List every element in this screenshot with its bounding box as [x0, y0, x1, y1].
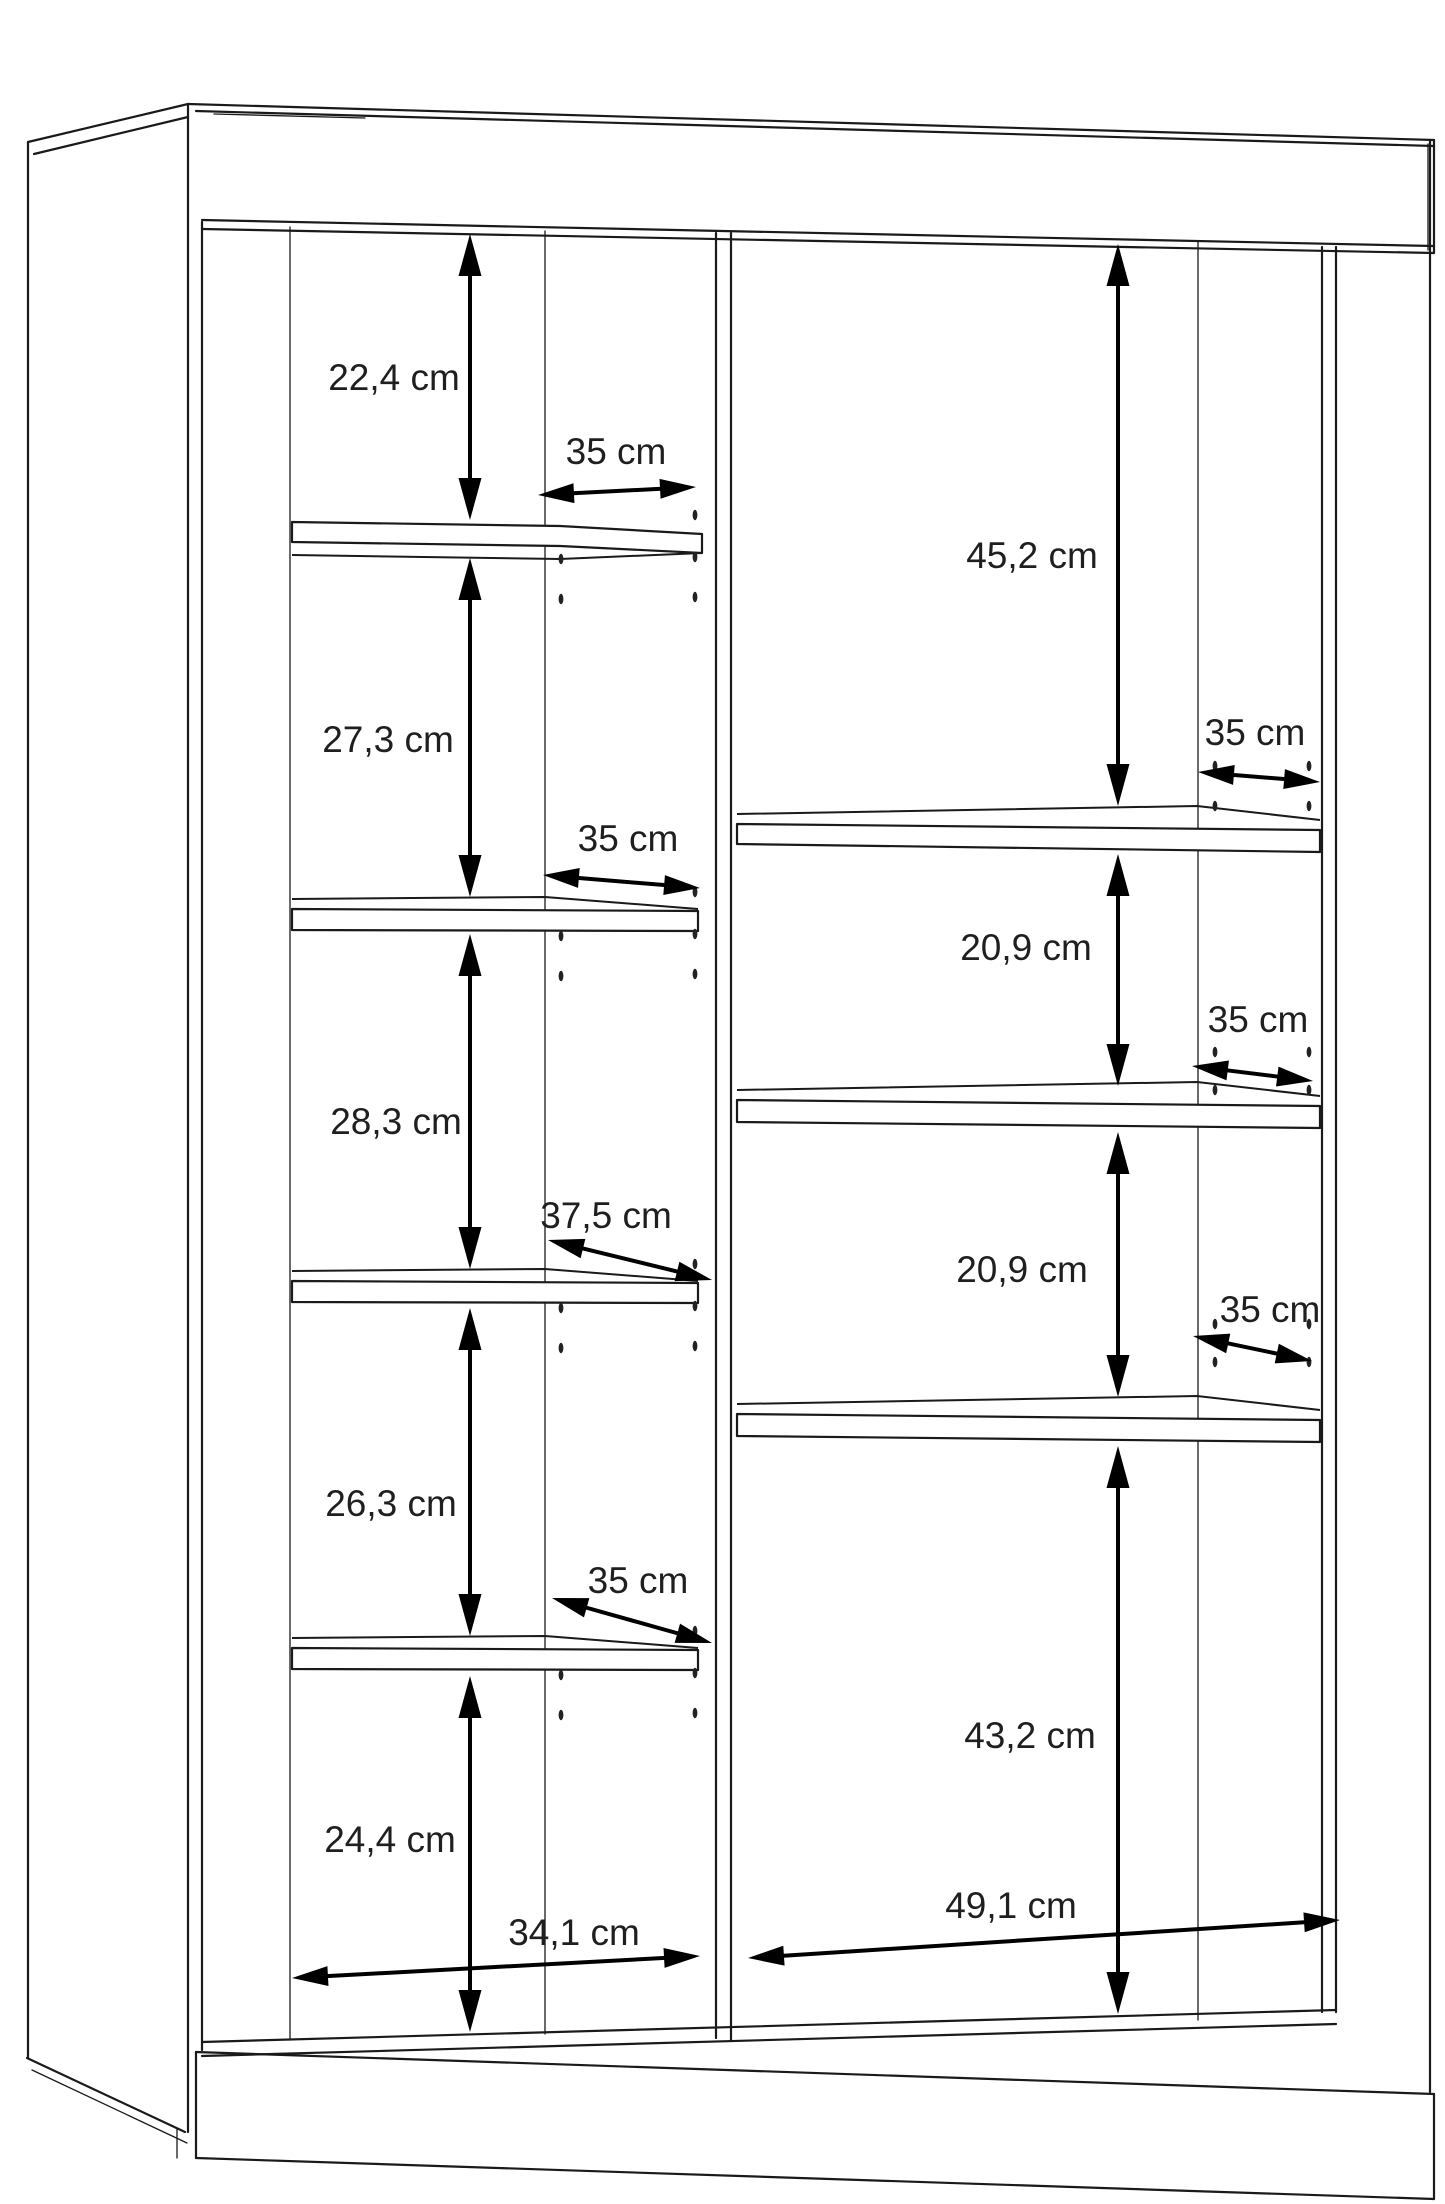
- dim-right-section-4: 43,2 cm: [964, 1715, 1096, 1757]
- dim-left-section-3: 28,3 cm: [330, 1101, 462, 1143]
- dim-right-section-3: 20,9 cm: [956, 1249, 1088, 1291]
- dim-right-width: 49,1 cm: [945, 1885, 1077, 1927]
- dim-right-depth-2: 35 cm: [1208, 999, 1309, 1041]
- cabinet-line-art: [0, 0, 1445, 2204]
- dim-left-depth-3: 37,5 cm: [540, 1195, 672, 1237]
- dim-right-depth-1: 35 cm: [1205, 712, 1306, 754]
- dim-left-depth-4: 35 cm: [588, 1560, 689, 1602]
- dim-left-width: 34,1 cm: [508, 1912, 640, 1954]
- dim-left-depth-2: 35 cm: [578, 818, 679, 860]
- dim-left-section-1: 22,4 cm: [328, 357, 460, 399]
- dim-right-section-1: 45,2 cm: [966, 535, 1098, 577]
- dim-right-section-2: 20,9 cm: [960, 927, 1092, 969]
- dim-left-section-2: 27,3 cm: [322, 719, 454, 761]
- dim-right-depth-3: 35 cm: [1220, 1289, 1321, 1331]
- dim-left-section-5: 24,4 cm: [324, 1819, 456, 1861]
- cabinet-dimension-diagram: 22,4 cm 27,3 cm 28,3 cm 26,3 cm 24,4 cm …: [0, 0, 1445, 2204]
- dim-left-depth-1: 35 cm: [566, 431, 667, 473]
- dim-left-section-4: 26,3 cm: [325, 1483, 457, 1525]
